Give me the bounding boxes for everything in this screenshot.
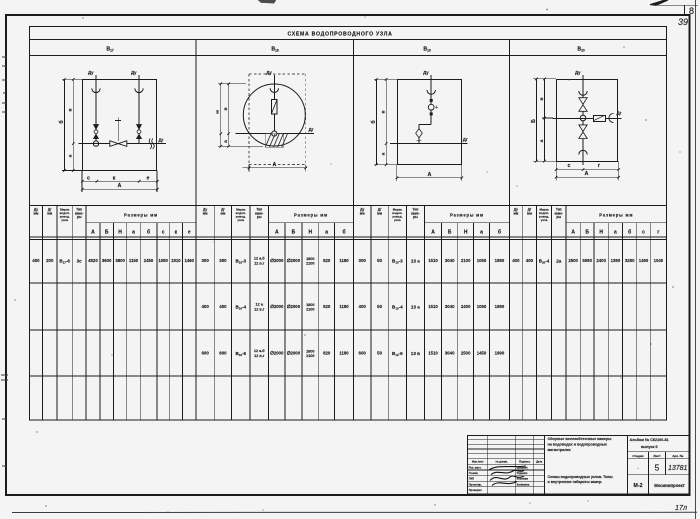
svg-text:Руденко: Руденко <box>517 471 528 475</box>
svg-text:Ду: Ду <box>423 70 429 75</box>
svg-text:12 в.г: 12 в.г <box>254 308 265 312</box>
svg-text:в: в <box>69 108 74 111</box>
svg-text:50: 50 <box>377 304 382 309</box>
svg-text:Ду: Ду <box>266 70 272 75</box>
svg-text:13781: 13781 <box>668 465 688 472</box>
svg-text:Схемы водопроводных узлов. Т: Схемы водопроводных узлов. Типы <box>548 475 613 479</box>
svg-text:1510: 1510 <box>428 304 438 309</box>
svg-text:∅2000: ∅2000 <box>287 258 301 263</box>
svg-text:ры: ры <box>77 215 82 219</box>
svg-text:Проектир.: Проектир. <box>469 482 482 486</box>
svg-text:1080: 1080 <box>158 258 168 263</box>
svg-text:с: с <box>162 230 165 236</box>
svg-text:Н: Н <box>464 230 468 236</box>
svg-text:Сборные железобетонные камеры: Сборные железобетонные камеры <box>548 437 612 441</box>
svg-text:820: 820 <box>323 351 331 356</box>
svg-text:1060: 1060 <box>477 304 487 309</box>
svg-text:1800: 1800 <box>306 349 314 353</box>
svg-text:3с: 3с <box>77 258 83 263</box>
svg-text:400: 400 <box>359 304 367 309</box>
svg-text:узла: узла <box>61 218 68 222</box>
svg-text:13 а: 13 а <box>411 258 420 263</box>
svg-text:400: 400 <box>201 304 209 309</box>
svg-text:Подпись: Подпись <box>519 460 531 464</box>
svg-text:1460: 1460 <box>639 258 649 263</box>
svg-text:а: а <box>540 139 545 142</box>
svg-text:8: 8 <box>689 6 694 16</box>
svg-text:2100: 2100 <box>461 258 471 263</box>
svg-text:Н: Н <box>118 230 122 236</box>
svg-text:Ду: Ду <box>575 70 581 75</box>
svg-text:с: с <box>87 175 90 181</box>
svg-text:1990: 1990 <box>495 351 505 356</box>
svg-text:2100: 2100 <box>306 354 314 358</box>
svg-text:Альбом № СК2106-81: Альбом № СК2106-81 <box>630 438 669 442</box>
svg-text:2450: 2450 <box>144 258 154 263</box>
svg-text:А: А <box>91 230 95 236</box>
svg-text:2400: 2400 <box>461 304 471 309</box>
svg-text:Н: Н <box>215 110 221 114</box>
svg-text:1180: 1180 <box>339 304 349 309</box>
svg-text:2а: 2а <box>556 258 562 263</box>
svg-text:3040: 3040 <box>445 351 455 356</box>
svg-text:12 в.г: 12 в.г <box>254 262 265 266</box>
svg-text:узла: узла <box>237 218 244 222</box>
svg-text:1510: 1510 <box>428 258 438 263</box>
svg-text:в: в <box>540 97 545 100</box>
svg-text:∅2000: ∅2000 <box>287 351 301 356</box>
svg-text:узла: узла <box>394 218 401 222</box>
svg-text:А: А <box>428 172 432 178</box>
svg-text:Лист: Лист <box>653 454 661 458</box>
svg-text:820: 820 <box>323 258 331 263</box>
svg-text:мм: мм <box>513 212 518 216</box>
svg-text:ры: ры <box>257 215 262 219</box>
svg-text:б: б <box>498 229 501 236</box>
svg-text:920: 920 <box>323 304 331 309</box>
svg-text:1980: 1980 <box>495 258 505 263</box>
svg-text:300: 300 <box>359 258 367 263</box>
svg-text:мм: мм <box>203 212 208 216</box>
svg-text:а: а <box>69 154 74 157</box>
svg-text:Мосинжпроект: Мосинжпроект <box>654 483 685 488</box>
svg-text:300: 300 <box>219 258 227 263</box>
svg-text:Дг: Дг <box>159 138 164 143</box>
svg-text:б: б <box>58 120 65 123</box>
svg-text:.: . <box>637 465 638 470</box>
svg-text:13 а: 13 а <box>411 304 420 309</box>
svg-text:Ду: Ду <box>131 70 137 75</box>
svg-text:а: а <box>224 140 229 143</box>
svg-text:выпуск II: выпуск II <box>641 445 658 449</box>
svg-text:СХЕМА ВОДОПРОВОДНОГО УЗЛА: СХЕМА ВОДОПРОВОДНОГО УЗЛА <box>287 32 392 38</box>
svg-text:2500: 2500 <box>568 258 578 263</box>
svg-text:3600: 3600 <box>102 258 112 263</box>
svg-text:мм: мм <box>360 212 365 216</box>
svg-text:мм: мм <box>47 212 52 216</box>
svg-text:400: 400 <box>512 258 520 263</box>
svg-text:б: б <box>343 229 346 236</box>
svg-text:1510: 1510 <box>428 351 438 356</box>
svg-text:600: 600 <box>201 351 209 356</box>
svg-text:1180: 1180 <box>339 258 349 263</box>
svg-text:Н: Н <box>308 230 312 236</box>
svg-text:а: а <box>382 152 387 155</box>
svg-text:50: 50 <box>377 351 382 356</box>
svg-text:в: в <box>224 107 229 110</box>
svg-text:б: б <box>628 229 631 236</box>
svg-text:2100: 2100 <box>306 262 314 266</box>
svg-text:∅2000: ∅2000 <box>287 304 301 309</box>
svg-text:∅2000: ∅2000 <box>270 351 284 356</box>
svg-text:200: 200 <box>46 258 54 263</box>
svg-text:Б: Б <box>105 230 109 236</box>
svg-text:1800: 1800 <box>306 257 314 261</box>
svg-text:Б: Б <box>531 119 537 123</box>
svg-text:магистралях: магистралях <box>548 448 572 452</box>
svg-text:39: 39 <box>678 17 688 27</box>
svg-text:5: 5 <box>655 463 660 473</box>
svg-text:ры: ры <box>556 215 561 219</box>
svg-text:А: А <box>431 230 435 236</box>
svg-text:А: А <box>118 183 122 189</box>
svg-text:мм: мм <box>34 212 39 216</box>
svg-text:А: А <box>571 230 575 236</box>
svg-text:300: 300 <box>201 258 209 263</box>
svg-text:ры: ры <box>413 215 418 219</box>
svg-text:А: А <box>275 230 279 236</box>
svg-text:3800: 3800 <box>115 258 125 263</box>
svg-text:4820: 4820 <box>88 258 98 263</box>
svg-text:1800: 1800 <box>306 303 314 307</box>
svg-text:1810: 1810 <box>171 258 181 263</box>
svg-text:1040: 1040 <box>654 258 664 263</box>
svg-text:мм: мм <box>377 212 382 216</box>
svg-text:12 а: 12 а <box>256 303 264 307</box>
svg-text:2100: 2100 <box>306 308 314 312</box>
svg-text:Н: Н <box>599 230 603 236</box>
svg-text:Гл.инж.: Гл.инж. <box>469 471 479 475</box>
svg-text:с: с <box>568 163 571 169</box>
svg-text:А: А <box>273 162 277 168</box>
svg-text:к: к <box>113 175 116 181</box>
svg-text:Размеры мм: Размеры мм <box>450 213 484 218</box>
svg-text:Ду: Ду <box>88 70 94 75</box>
svg-text:13 в: 13 в <box>411 351 420 356</box>
svg-text:3280: 3280 <box>625 258 635 263</box>
svg-text:400: 400 <box>32 258 40 263</box>
svg-text:Дг: Дг <box>463 137 468 142</box>
svg-text:400: 400 <box>526 258 534 263</box>
svg-text:М-2: М-2 <box>634 483 643 489</box>
svg-text:17л: 17л <box>675 503 687 512</box>
svg-text:2500: 2500 <box>461 351 471 356</box>
svg-text:мм: мм <box>221 212 226 216</box>
svg-text:12 а.б: 12 а.б <box>254 349 265 353</box>
svg-text:Дг: Дг <box>617 110 622 115</box>
svg-text:мм: мм <box>527 212 532 216</box>
svg-text:№ докум.: № докум. <box>496 461 508 464</box>
svg-text:Б: Б <box>448 230 452 236</box>
svg-text:А: А <box>585 171 589 177</box>
svg-text:Стадия: Стадия <box>632 454 643 458</box>
svg-text:Калинина: Калинина <box>517 482 530 486</box>
svg-text:в: в <box>382 110 387 113</box>
svg-text:е: е <box>147 175 150 181</box>
svg-text:Размеры мм: Размеры мм <box>124 213 158 218</box>
svg-text:и внутренние габариты камер.: и внутренние габариты камер. <box>548 480 603 484</box>
svg-text:Изм лист: Изм лист <box>472 460 484 464</box>
svg-text:Размеры мм: Размеры мм <box>599 213 633 218</box>
svg-text:50: 50 <box>377 258 382 263</box>
svg-text:а: а <box>480 230 483 236</box>
svg-text:∅2000: ∅2000 <box>270 258 284 263</box>
svg-text:Б: Б <box>585 230 589 236</box>
svg-text:400: 400 <box>219 304 227 309</box>
svg-text:Дата: Дата <box>536 460 543 464</box>
svg-text:1180: 1180 <box>339 351 349 356</box>
svg-text:а: а <box>325 230 328 236</box>
svg-text:1980: 1980 <box>495 304 505 309</box>
svg-text:Арх. №: Арх. № <box>672 454 684 458</box>
svg-text:Б: Б <box>292 230 296 236</box>
svg-text:1150: 1150 <box>129 258 139 263</box>
svg-text:3040: 3040 <box>445 258 455 263</box>
svg-text:б: б <box>147 229 150 236</box>
svg-text:∅2000: ∅2000 <box>270 304 284 309</box>
svg-text:2400: 2400 <box>596 258 606 263</box>
svg-text:на водоводах и водопроводных: на водоводах и водопроводных <box>548 443 608 447</box>
svg-text:Дг: Дг <box>309 127 314 132</box>
svg-text:Рук. маст.: Рук. маст. <box>469 465 482 469</box>
svg-text:3040: 3040 <box>445 304 455 309</box>
svg-text:Проверил: Проверил <box>469 488 482 492</box>
svg-text:с: с <box>642 230 645 236</box>
svg-text:1460: 1460 <box>184 258 194 263</box>
svg-text:а: а <box>132 230 135 236</box>
svg-text:а: а <box>614 230 617 236</box>
svg-text:узла: узла <box>541 218 548 222</box>
svg-text:12 в.г: 12 в.г <box>254 354 265 358</box>
svg-text:е: е <box>188 230 191 236</box>
svg-text:б: б <box>370 120 377 123</box>
svg-text:12 а.б: 12 а.б <box>254 257 265 261</box>
svg-text:1060: 1060 <box>477 258 487 263</box>
svg-text:Размеры мм: Размеры мм <box>294 213 328 218</box>
svg-text:5080: 5080 <box>582 258 592 263</box>
svg-text:600: 600 <box>219 351 227 356</box>
svg-text:1380: 1380 <box>611 258 621 263</box>
svg-text:600: 600 <box>359 351 367 356</box>
svg-text:1450: 1450 <box>477 351 487 356</box>
svg-text:ГИП: ГИП <box>469 477 474 481</box>
